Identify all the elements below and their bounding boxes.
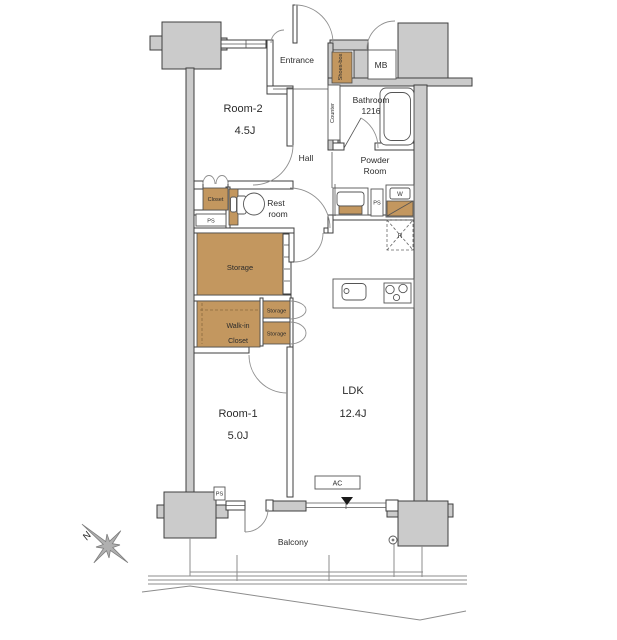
floor-plan: N Room-2 4.5J Entrance Hall Powder Room … xyxy=(0,0,617,640)
entrance-label: Entrance xyxy=(280,55,314,65)
column-top-right xyxy=(398,23,448,78)
column-bottom-right-tab-right xyxy=(448,504,453,517)
refrigerator-label: R xyxy=(398,234,403,240)
washing-machine-label: W xyxy=(397,192,403,198)
ps-label-2: PS xyxy=(373,201,381,207)
powder-room-label-2: Room xyxy=(364,166,387,176)
closet-wall-stub xyxy=(194,181,203,189)
washbasin-sink xyxy=(337,192,364,206)
kitchen-counter xyxy=(333,279,414,308)
column-bottom-left xyxy=(164,492,216,538)
storage-large-label: Storage xyxy=(227,263,253,272)
column-bottom-left-tab xyxy=(157,505,164,518)
ldk-name: LDK xyxy=(342,385,364,397)
bathroom-door-leaf xyxy=(344,118,361,148)
compass-rose xyxy=(68,509,141,580)
entrance-door-arc xyxy=(295,5,333,43)
shoes-box-label: Shoes-box xyxy=(338,53,344,80)
storage-small-2-label: Storage xyxy=(267,332,287,338)
column-top-left xyxy=(162,22,221,69)
closet-label: Closet xyxy=(208,197,224,203)
ldk-door-arc xyxy=(294,233,323,262)
room2-bottom-wall xyxy=(228,181,293,189)
restroom-label-2: room xyxy=(268,209,287,219)
room2-right-wall xyxy=(287,88,293,146)
ldk-area: 12.4J xyxy=(340,408,367,420)
column-top-left-tab xyxy=(150,36,162,50)
kitchen-faucet xyxy=(344,289,349,294)
storage-small-1-label: Storage xyxy=(267,309,287,315)
room2-name: Room-2 xyxy=(223,103,262,115)
room1-name: Room-1 xyxy=(218,408,257,420)
room1-right-wall xyxy=(287,347,293,497)
balcony-structure xyxy=(142,536,467,620)
ldk-door-leaf xyxy=(289,233,294,262)
top-wall-right-of-entrance xyxy=(330,40,368,50)
storage-right-wall xyxy=(290,298,293,348)
restroom-label-1: Rest xyxy=(267,198,285,208)
storage-wic-divider xyxy=(194,295,291,301)
ac-label: AC xyxy=(333,481,343,488)
balcony-label: Balcony xyxy=(278,537,309,547)
walk-in-closet-label-1: Walk-in xyxy=(226,323,249,330)
right-exterior-wall xyxy=(414,85,427,502)
ps-label-1: PS xyxy=(207,219,215,225)
ps-label-3: PS xyxy=(216,492,224,498)
ground-line xyxy=(142,586,466,620)
room1-area: 5.0J xyxy=(228,430,249,442)
washbasin-drawer xyxy=(339,206,362,214)
wic-bottom-wall xyxy=(194,347,249,353)
bathroom-label: Bathroom xyxy=(353,95,390,105)
entrance-door-leaf xyxy=(293,5,297,43)
hall-ldk-wall xyxy=(194,228,294,233)
closet-bifold-arc-2 xyxy=(216,176,228,185)
room2-area: 4.5J xyxy=(235,125,256,137)
meter-box-door-arc xyxy=(367,21,395,49)
powder-room-label-1: Powder xyxy=(361,155,390,165)
sliding-door-marker xyxy=(341,497,353,505)
closet-bifold-arc-1 xyxy=(203,176,215,185)
balcony-door-arc xyxy=(245,509,268,532)
counter-label: Counter xyxy=(330,103,336,123)
storage-small-divider xyxy=(263,318,290,322)
meter-box-label: MB xyxy=(375,60,388,70)
restroom-door-arc xyxy=(290,188,330,228)
bathroom-bottom-wall-left xyxy=(333,143,344,150)
toilet-bowl xyxy=(244,193,265,215)
hall-label: Hall xyxy=(299,153,314,163)
balcony-door-jamb xyxy=(266,500,273,511)
restroom-basin xyxy=(231,197,237,212)
walk-in-closet-label-2: Closet xyxy=(228,338,248,345)
left-exterior-wall xyxy=(186,68,194,492)
room2-door-arc xyxy=(253,145,293,185)
balcony-wall-segment xyxy=(272,501,306,511)
room1-door-arc xyxy=(249,355,287,393)
column-bottom-right xyxy=(398,501,448,546)
window-jamb-right xyxy=(386,500,398,511)
bathroom-size: 1216 xyxy=(362,106,381,116)
